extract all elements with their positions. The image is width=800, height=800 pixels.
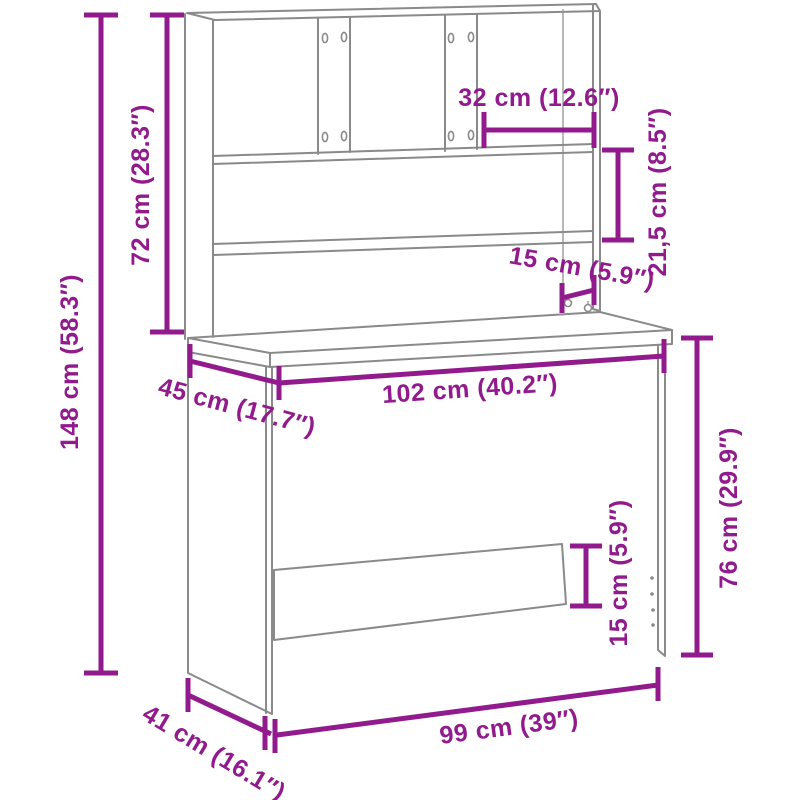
dim-desk-height: 76 cm (29.9″) — [681, 338, 743, 655]
dim-base-width: 99 cm (39″) — [277, 667, 658, 750]
dim-base-depth-label: 41 cm (16.1″) — [138, 699, 291, 800]
right-panel-pin-holes — [650, 576, 655, 627]
diagram-canvas: 148 cm (58.3″) 72 cm (28.3″) 32 cm (12.6… — [0, 0, 800, 800]
dim-total-height-label: 148 cm (58.3″) — [56, 274, 84, 450]
dim-support-spacing: 15 cm (5.9″) — [507, 241, 657, 313]
dim-desktop-depth: 45 cm (17.7″) — [155, 344, 318, 441]
dim-support-spacing-label: 15 cm (5.9″) — [507, 241, 657, 294]
desk-crossbar — [274, 544, 566, 640]
desk-dimension-diagram: 148 cm (58.3″) 72 cm (28.3″) 32 cm (12.6… — [0, 0, 800, 800]
dim-compartment-width: 32 cm (12.6″) — [458, 84, 620, 148]
desk-right-panel — [658, 346, 665, 656]
dim-shelf-spacing-label: 21,5 cm (8.5″) — [644, 107, 672, 276]
dim-crossbar-height-label: 15 cm (5.9″) — [605, 499, 633, 646]
dim-desk-height-label: 76 cm (29.9″) — [715, 427, 743, 589]
hutch — [185, 4, 600, 339]
hutch-left-panel — [185, 14, 213, 339]
dim-hutch-height: 72 cm (28.3″) — [127, 15, 184, 332]
hutch-top-panel — [187, 4, 600, 20]
hutch-shelf-upper — [213, 144, 593, 164]
dim-hutch-height-label: 72 cm (28.3″) — [127, 104, 155, 266]
dim-shelf-spacing: 21,5 cm (8.5″) — [602, 107, 672, 276]
dim-crossbar-height: 15 cm (5.9″) — [570, 499, 633, 646]
divider-left-screw-holes — [322, 32, 346, 141]
dim-total-height: 148 cm (58.3″) — [56, 15, 118, 673]
dim-compartment-width-label: 32 cm (12.6″) — [458, 84, 620, 112]
dim-base-depth: 41 cm (16.1″) — [138, 678, 291, 800]
dimension-annotations: 148 cm (58.3″) 72 cm (28.3″) 32 cm (12.6… — [56, 15, 743, 800]
